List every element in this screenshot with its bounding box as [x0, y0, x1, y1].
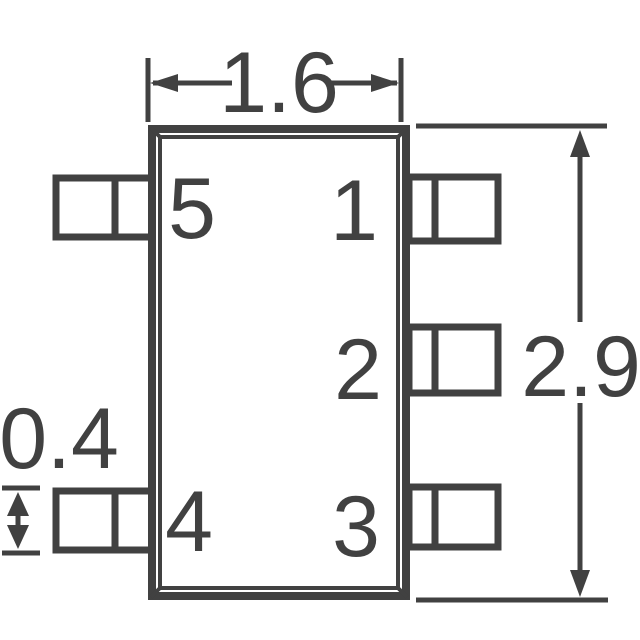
dim-body-width-label: 1.6 — [219, 35, 339, 131]
dim-overall-height-label: 2.9 — [521, 319, 640, 415]
width-arrowhead-right — [371, 74, 399, 92]
pin-5-lead — [56, 178, 152, 237]
lead-width-arrowhead-up — [7, 492, 29, 516]
lead-width-arrowhead-down — [7, 525, 29, 549]
width-arrowhead-left — [150, 74, 178, 92]
pin-2-label: 2 — [334, 322, 382, 418]
dim-lead-width-label: 0.4 — [0, 391, 119, 487]
package-outline-drawing: 5 1 2 3 4 1.6 2.9 0.4 — [0, 0, 640, 640]
pin-3-label: 3 — [332, 479, 380, 575]
height-arrowhead-top — [570, 130, 590, 157]
pin-4-label: 4 — [165, 474, 213, 570]
height-arrowhead-bottom — [570, 570, 590, 597]
pin-3-lead — [409, 487, 498, 547]
pin-4-lead — [56, 491, 152, 550]
pin-1-lead — [409, 177, 498, 241]
pin-5-label: 5 — [168, 161, 216, 257]
pin-2-lead — [409, 327, 498, 393]
package-drawing-canvas: 5 1 2 3 4 1.6 2.9 0.4 — [0, 0, 640, 640]
pin-1-label: 1 — [330, 163, 378, 259]
dimension-body-width: 1.6 — [148, 35, 401, 131]
